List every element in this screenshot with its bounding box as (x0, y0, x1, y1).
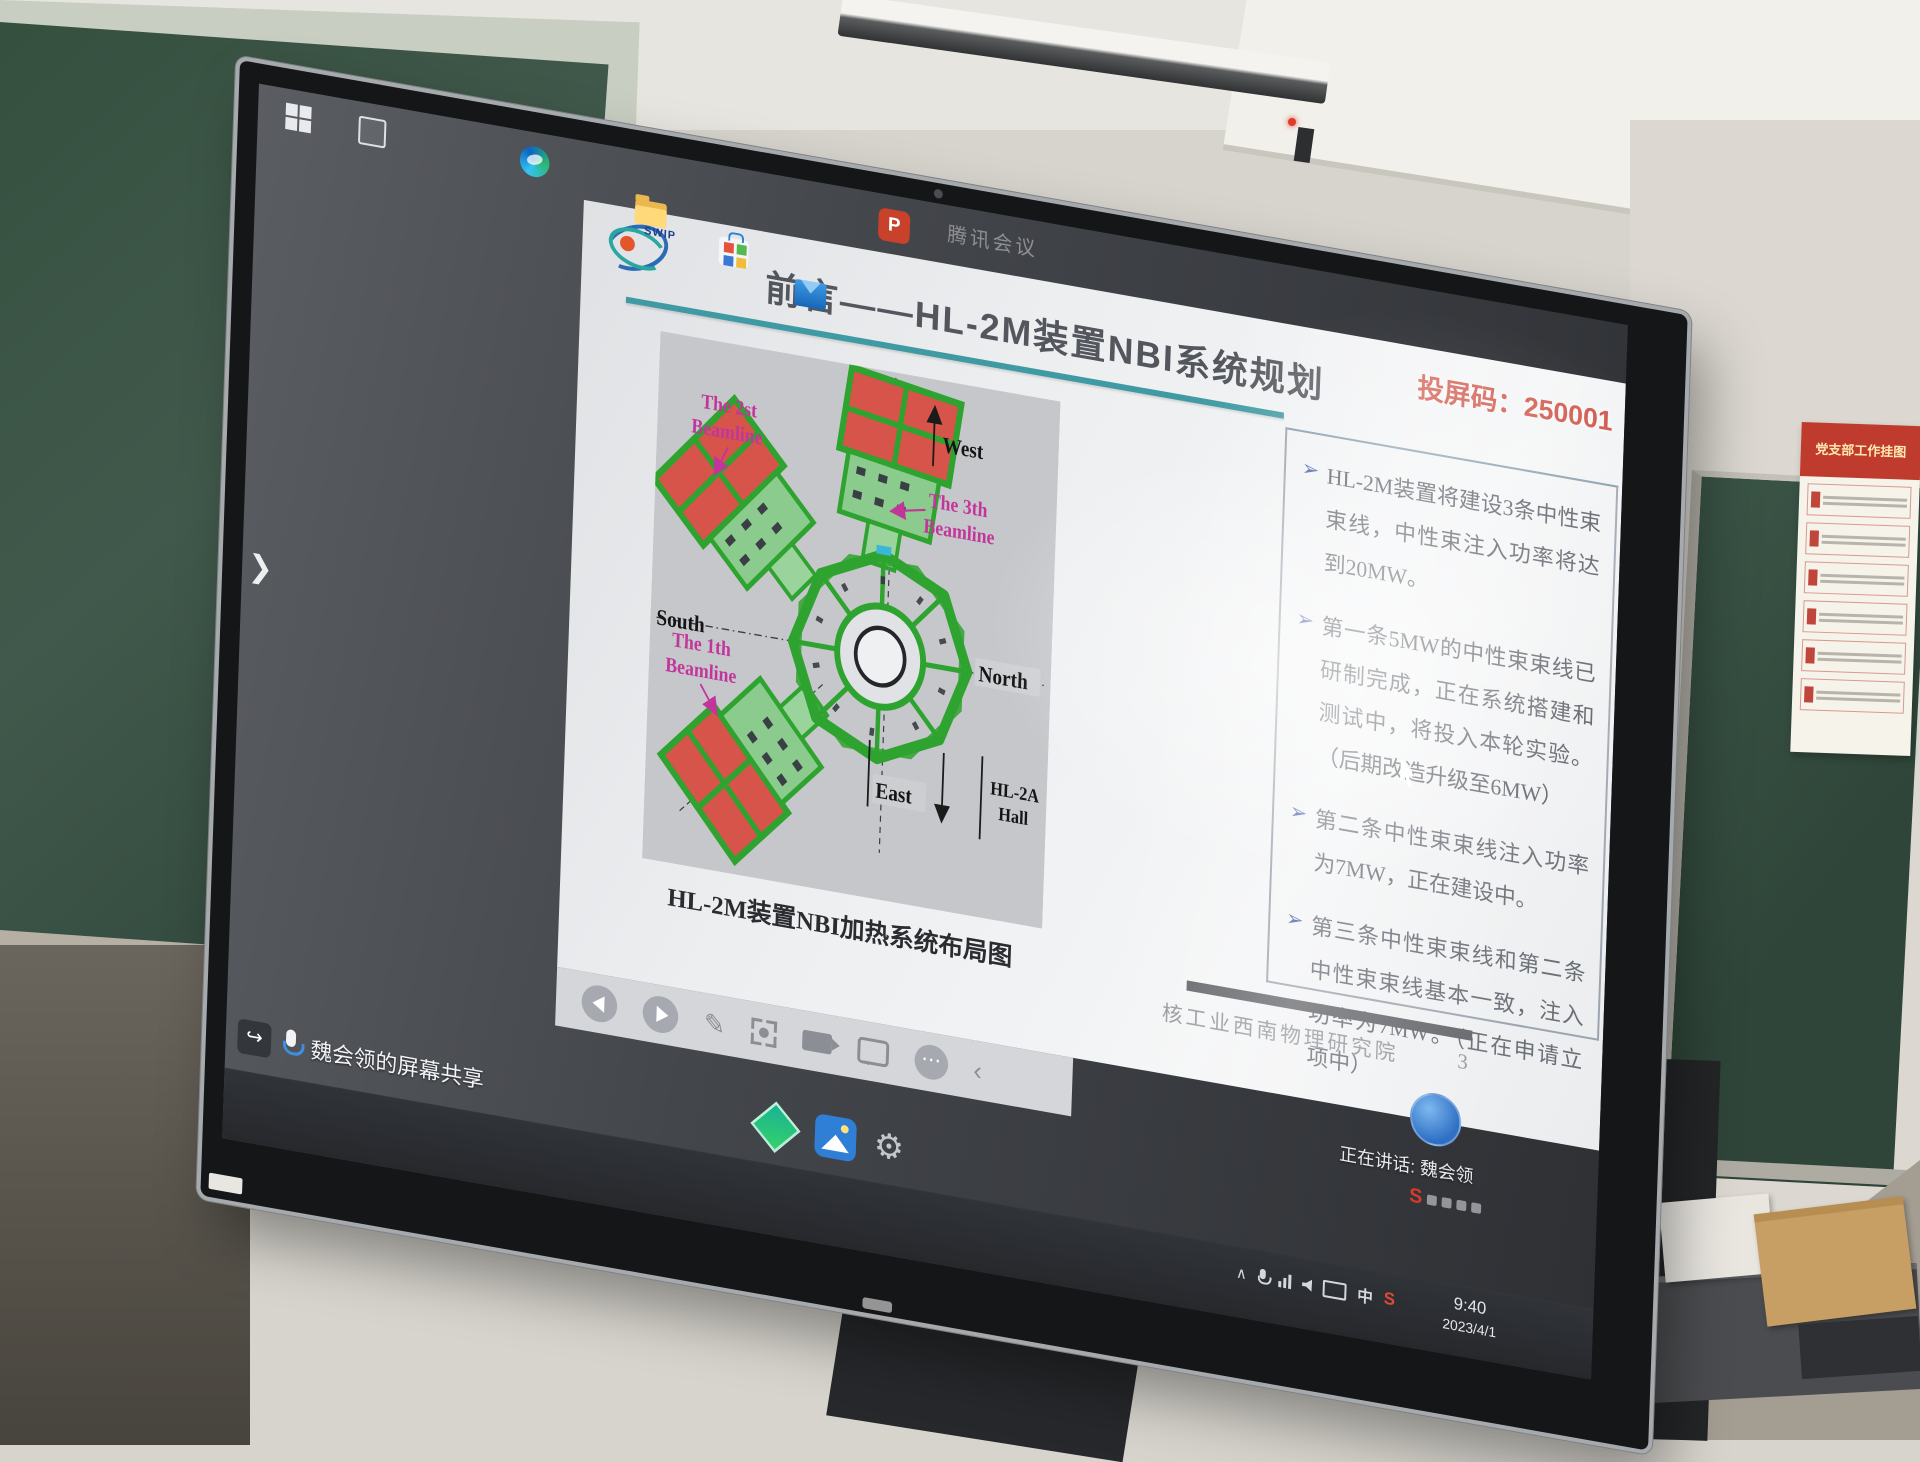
party-poster: 党支部工作挂图 (1790, 422, 1920, 756)
share-label: 魏会领的屏幕共享 (310, 1032, 484, 1095)
bezel-brand-logo (862, 1297, 892, 1313)
assistant-app-icon[interactable] (750, 1101, 800, 1152)
tray-volume-icon[interactable] (1302, 1278, 1312, 1292)
screen: 腾讯会议 ❯ SWIP 前言——HL-2M装置NBI系统规划 投屏码：25000… (222, 84, 1628, 1380)
poster-row (1805, 522, 1910, 558)
tray-keyboard-icon[interactable] (1322, 1279, 1346, 1300)
collapse-toolbar-icon[interactable]: ‹ (973, 1057, 982, 1085)
bullet-text-box: ➢ HL-2M装置将建设3条中性束束线，中性束注入功率将达到20MW。 ➢ 第一… (1266, 427, 1618, 1041)
tokamak-diagram: West South North East HL-2A Hall The 2st… (642, 331, 1060, 928)
bullet-text: HL-2M装置将建设3条中性束束线，中性束注入功率将达到20MW。 (1323, 455, 1602, 633)
tray-sogou-icon[interactable]: S (1383, 1288, 1395, 1310)
bullet-arrow-icon: ➢ (1291, 600, 1314, 776)
start-button[interactable] (285, 103, 312, 134)
floating-dock: ⚙ (753, 1101, 905, 1172)
comment-icon[interactable] (857, 1036, 889, 1068)
whiteboard-app-icon[interactable] (814, 1113, 857, 1163)
tray-ime-indicator[interactable]: 中 (1357, 1282, 1374, 1309)
meeting-watermark: 腾讯会议 (947, 217, 1039, 262)
poster-title: 党支部工作挂图 (1800, 422, 1920, 480)
bullet-item: ➢ 第一条5MW的中性束束线已研制完成，正在系统搭建和测试中，将投入本轮实验。（… (1291, 600, 1596, 826)
interactive-display: 腾讯会议 ❯ SWIP 前言——HL-2M装置NBI系统规划 投屏码：25000… (200, 60, 1687, 1451)
cardboard-box (1754, 1196, 1917, 1326)
share-icon[interactable]: ↪ (237, 1018, 272, 1058)
microphone-icon[interactable] (280, 1026, 301, 1064)
microsoft-store-icon[interactable] (718, 236, 749, 269)
bullet-item: ➢ HL-2M装置将建设3条中性束束线，中性束注入功率将达到20MW。 (1298, 450, 1602, 633)
powerpoint-icon[interactable]: P (878, 207, 911, 245)
back-button[interactable] (581, 982, 618, 1025)
brand-s-mark: S (1409, 1184, 1423, 1210)
forward-button[interactable] (642, 993, 679, 1036)
bullet-arrow-icon: ➢ (1298, 450, 1320, 583)
layout-diagram-panel: West South North East HL-2A Hall The 2st… (642, 331, 1060, 928)
poster-row (1807, 483, 1912, 519)
tray-expand-icon[interactable]: ∧ (1236, 1263, 1247, 1283)
more-options-button[interactable]: ⋯ (914, 1042, 949, 1082)
poster-row (1804, 561, 1909, 597)
task-view-button[interactable] (358, 115, 387, 148)
edge-browser-icon[interactable] (519, 144, 550, 179)
tray-network-icon[interactable] (1278, 1273, 1291, 1289)
sidebar-toggle-chevron-icon[interactable]: ❯ (248, 551, 274, 586)
capture-icon[interactable] (750, 1017, 777, 1048)
rail-led-light (1288, 118, 1296, 126)
slide-page-number: 3 (1457, 1049, 1468, 1076)
bezel-camera (934, 188, 943, 199)
poster-row (1800, 678, 1905, 714)
poster-row (1801, 639, 1906, 675)
tray-microphone-icon[interactable] (1257, 1268, 1267, 1286)
mail-app-icon[interactable] (794, 279, 826, 311)
brand-watermark: S (1409, 1184, 1482, 1220)
bullet-text: 第一条5MW的中性束束线已研制完成，正在系统搭建和测试中，将投入本轮实验。（后期… (1316, 605, 1596, 826)
poster-row (1802, 600, 1907, 636)
bullet-arrow-icon: ➢ (1287, 794, 1307, 884)
right-panel-chevron-icon[interactable]: ‹ (1533, 692, 1542, 720)
camera-icon[interactable] (802, 1029, 832, 1054)
pen-icon[interactable]: ✎ (703, 1009, 725, 1039)
bezel-sticker (209, 1173, 243, 1195)
black-box (1798, 1316, 1920, 1379)
gear-icon[interactable]: ⚙ (873, 1127, 904, 1167)
